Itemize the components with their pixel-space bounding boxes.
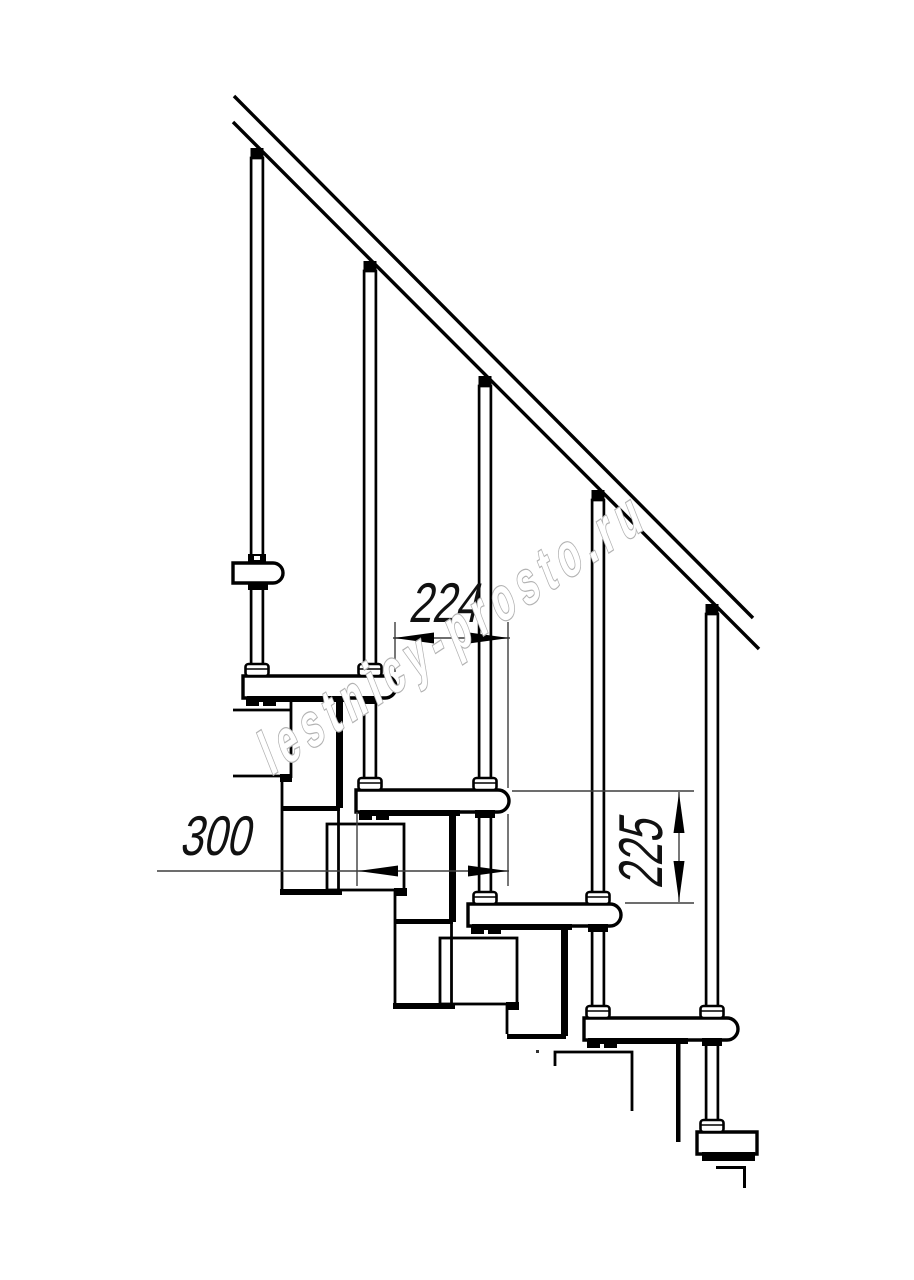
svg-text:300: 300 bbox=[176, 804, 261, 867]
